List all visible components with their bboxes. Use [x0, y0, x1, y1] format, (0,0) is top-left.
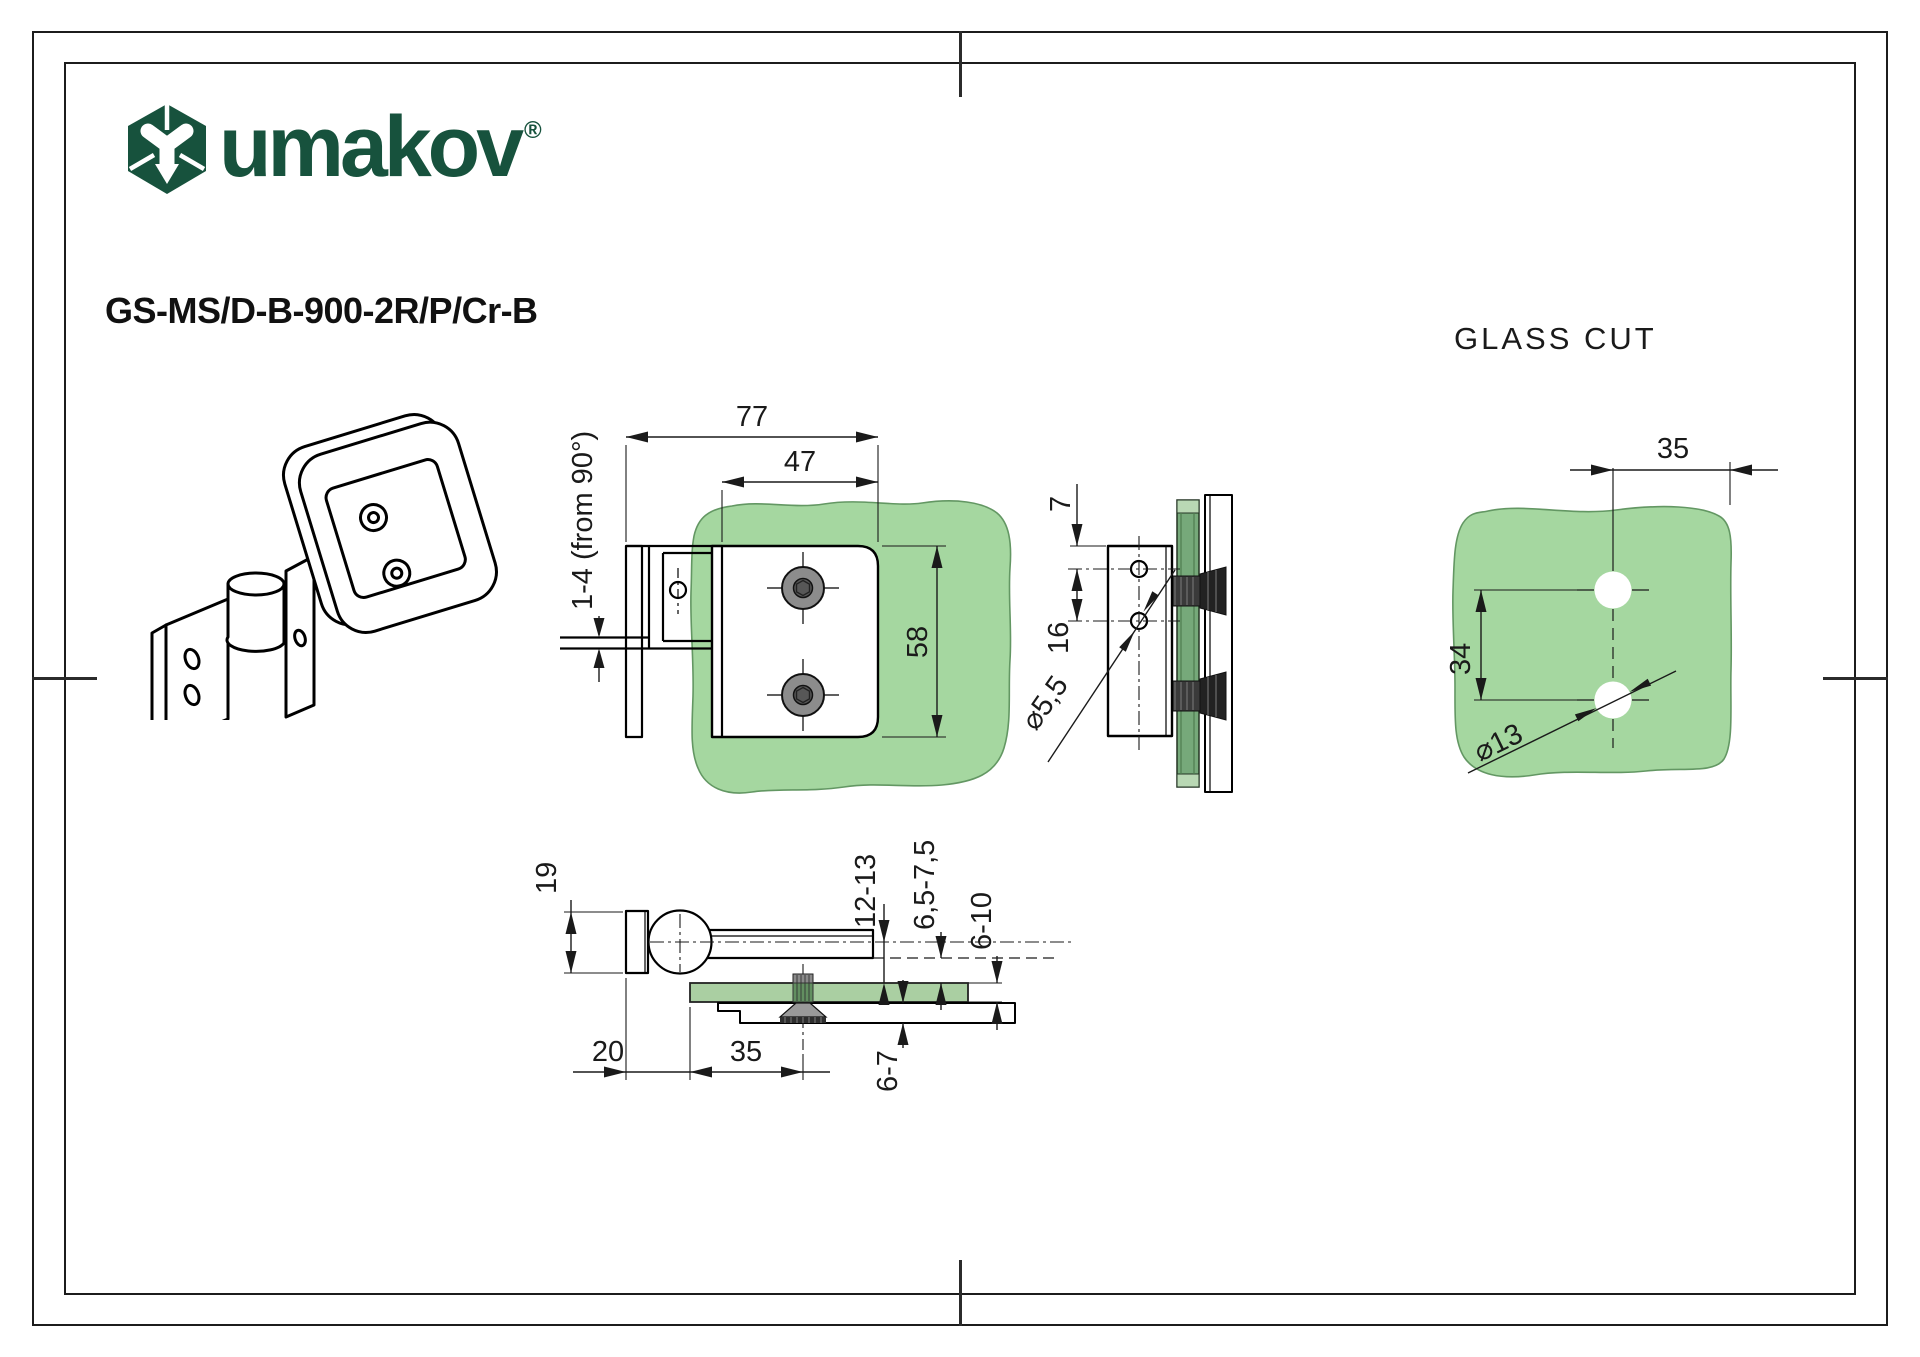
glass-cut-title: GLASS CUT — [1454, 321, 1657, 356]
svg-text:6-10: 6-10 — [966, 892, 998, 950]
svg-text:19: 19 — [531, 862, 563, 894]
svg-text:12-13: 12-13 — [850, 854, 882, 928]
bottom-glass — [690, 983, 1002, 1002]
side-far-plate — [1205, 495, 1232, 792]
glasscut-hole — [1595, 572, 1632, 609]
svg-text:7: 7 — [1045, 496, 1077, 512]
svg-text:16: 16 — [1043, 622, 1075, 654]
svg-text:58: 58 — [902, 626, 934, 658]
dim-knuckle-width: 19 — [531, 862, 623, 973]
dim-hole-spacing: 16 — [1043, 569, 1083, 654]
logo-wordmark: umakov® — [219, 104, 542, 190]
iso-wall-bracket — [152, 599, 228, 720]
bottom-view: 19 20 35 12-13 6 — [520, 830, 1080, 1130]
dim-screw-offset: 35 — [730, 1036, 803, 1080]
drawing-sheet: umakov® GS-MS/D-B-900-2R/P/Cr-B — [0, 0, 1920, 1357]
svg-text:20: 20 — [592, 1036, 624, 1068]
registration-tick-left — [32, 677, 97, 680]
side-glass-edge — [1177, 500, 1199, 787]
registration-tick-bottom — [959, 1260, 962, 1326]
registration-tick-top — [959, 31, 962, 97]
svg-text:6-7: 6-7 — [872, 1050, 904, 1092]
bottom-clamp-plate — [718, 1003, 1015, 1023]
side-view: 7 16 ⌀5,5 — [1020, 440, 1270, 820]
dim-edge-offset: 7 — [1045, 484, 1106, 546]
svg-text:⌀5,5: ⌀5,5 — [1020, 670, 1075, 736]
registered-mark: ® — [524, 117, 542, 144]
svg-text:34: 34 — [1445, 643, 1477, 675]
product-code: GS-MS/D-B-900-2R/P/Cr-B — [105, 290, 538, 332]
glass-cut-view: GLASS CUT 35 34 — [1430, 305, 1860, 815]
svg-text:35: 35 — [1657, 433, 1689, 465]
svg-text:35: 35 — [730, 1036, 762, 1068]
svg-text:1-4 (from 90°): 1-4 (from 90°) — [567, 431, 599, 610]
svg-text:6,5-7,5: 6,5-7,5 — [909, 840, 941, 930]
svg-text:47: 47 — [784, 446, 816, 478]
iso-hinge-leaf — [286, 556, 314, 717]
iso-pivot-cylinder — [227, 573, 284, 651]
bottom-hinge-body — [626, 911, 1072, 974]
glasscut-hole — [1595, 682, 1632, 719]
umakov-logo-icon — [122, 102, 212, 196]
dim-adjust-range: 1-4 (from 90°) — [567, 431, 605, 682]
svg-text:77: 77 — [736, 401, 768, 433]
dim-glasscut-offset: 35 — [1570, 433, 1778, 505]
